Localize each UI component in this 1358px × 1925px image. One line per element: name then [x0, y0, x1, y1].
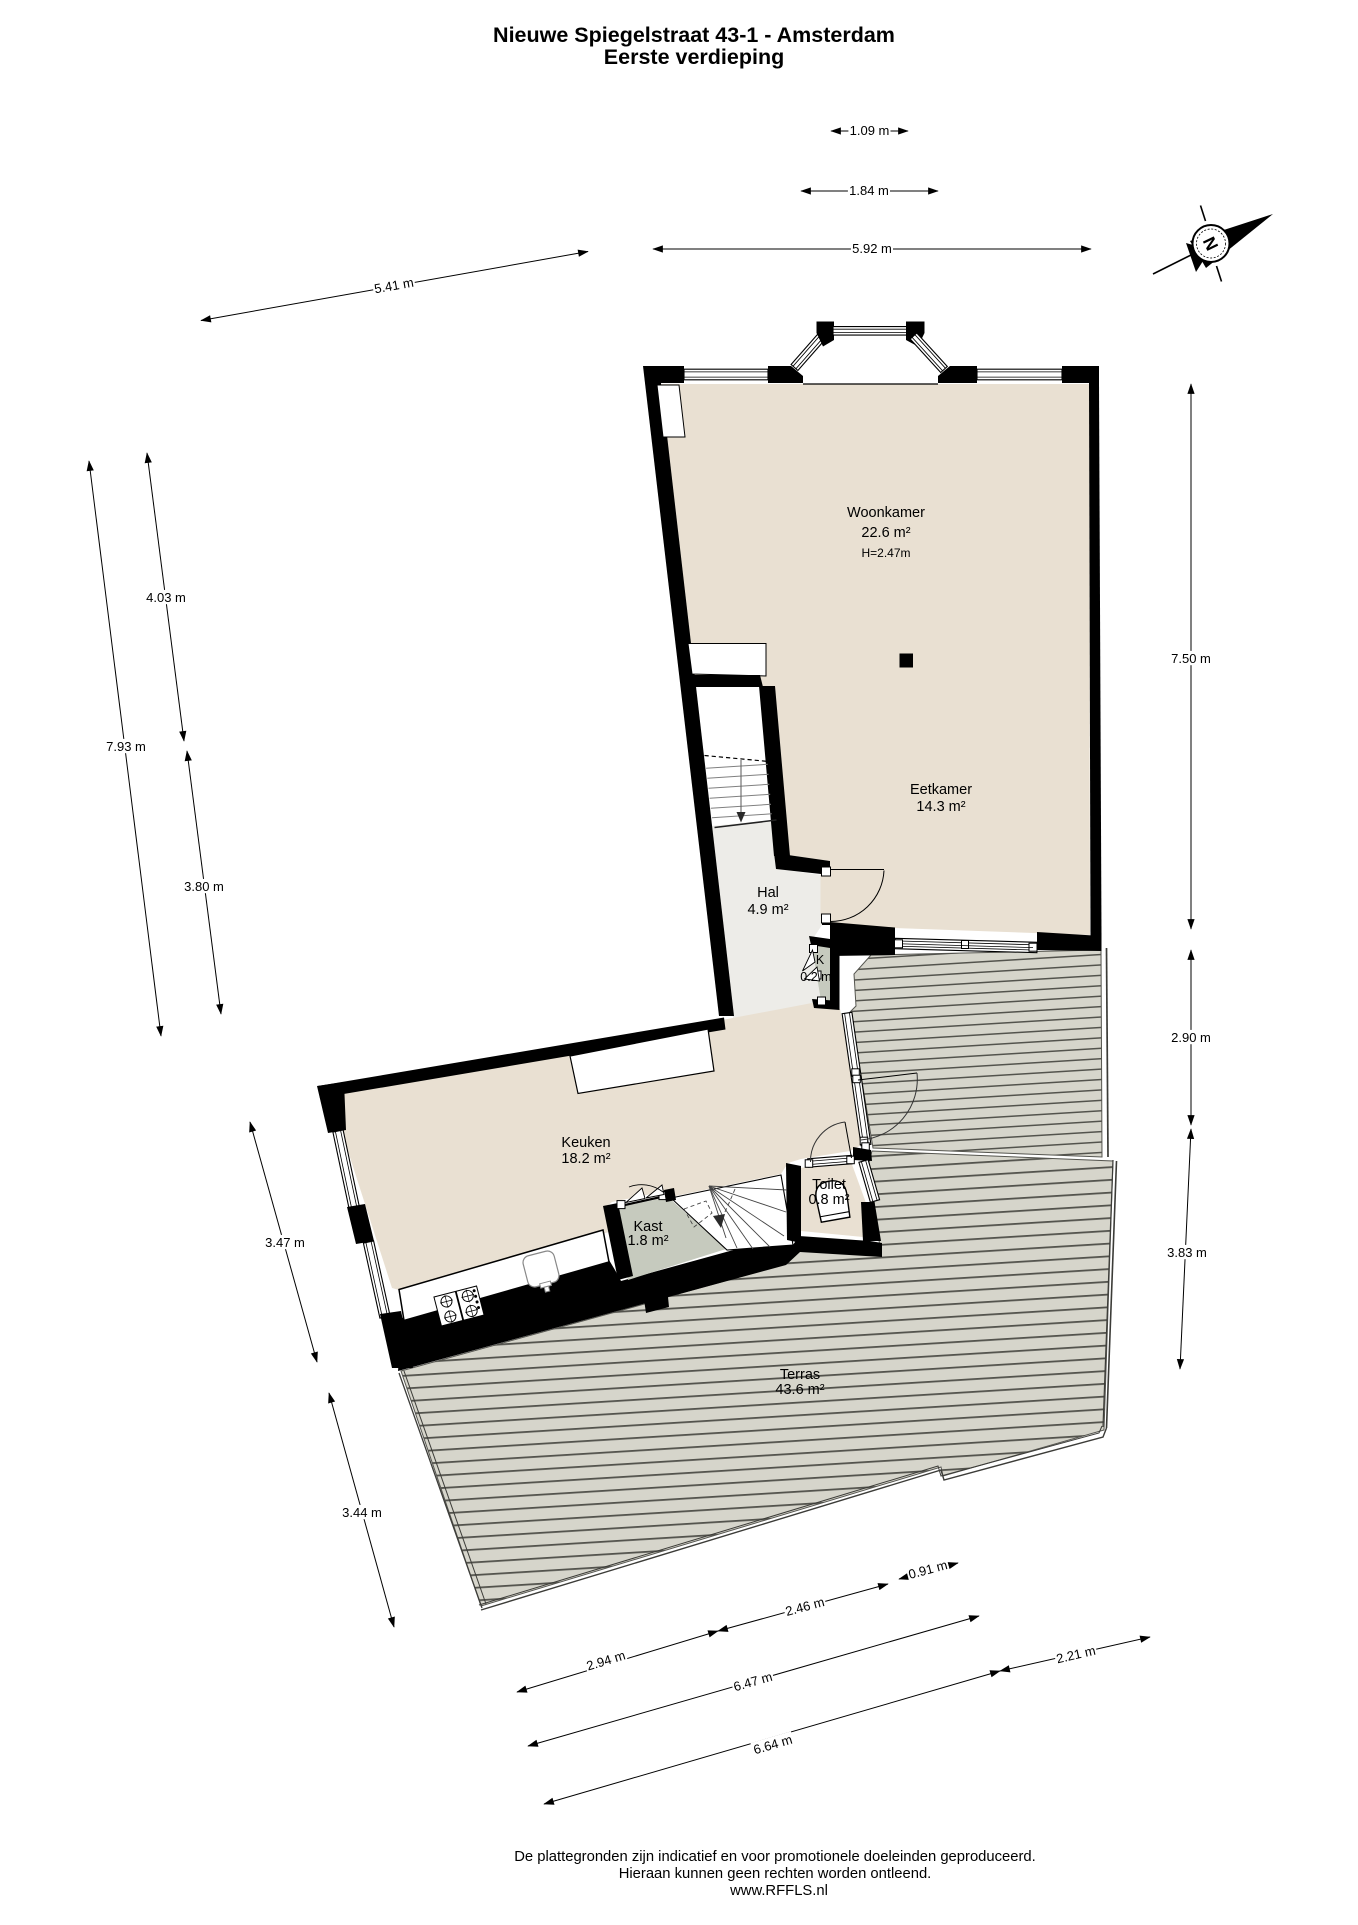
svg-text:2.90 m: 2.90 m	[1171, 1030, 1211, 1045]
svg-text:1.84 m: 1.84 m	[849, 183, 889, 198]
svg-text:Keuken: Keuken	[561, 1135, 610, 1151]
svg-text:3.47 m: 3.47 m	[265, 1235, 305, 1250]
svg-text:H=2.47m: H=2.47m	[861, 546, 910, 560]
svg-text:22.6 m²: 22.6 m²	[861, 525, 910, 541]
svg-text:5.92 m: 5.92 m	[852, 241, 892, 256]
svg-text:K: K	[816, 953, 825, 967]
svg-text:3.44 m: 3.44 m	[342, 1505, 382, 1520]
svg-text:www.RFFLS.nl: www.RFFLS.nl	[729, 1883, 828, 1899]
svg-text:Nieuwe Spiegelstraat 43-1 - Am: Nieuwe Spiegelstraat 43-1 - Amsterdam	[493, 23, 895, 47]
svg-text:14.3 m²: 14.3 m²	[916, 799, 965, 815]
svg-text:4.03 m: 4.03 m	[146, 590, 186, 605]
svg-text:Hal: Hal	[757, 885, 779, 901]
svg-text:18.2 m²: 18.2 m²	[561, 1151, 610, 1167]
svg-text:3.83 m: 3.83 m	[1167, 1245, 1207, 1260]
svg-text:Toilet: Toilet	[812, 1177, 846, 1193]
svg-text:7.93 m: 7.93 m	[106, 739, 146, 754]
svg-text:Woonkamer: Woonkamer	[847, 505, 925, 521]
svg-text:0.2 m²: 0.2 m²	[800, 970, 835, 984]
svg-text:Eetkamer: Eetkamer	[910, 782, 972, 798]
svg-text:0.8 m²: 0.8 m²	[808, 1192, 849, 1208]
svg-text:7.50 m: 7.50 m	[1171, 651, 1211, 666]
svg-text:Hieraan kunnen geen rechten wo: Hieraan kunnen geen rechten worden ontle…	[619, 1866, 932, 1882]
svg-text:1.09 m: 1.09 m	[850, 123, 890, 138]
svg-text:43.6 m²: 43.6 m²	[775, 1382, 824, 1398]
svg-text:Eerste verdieping: Eerste verdieping	[604, 45, 784, 69]
svg-text:1.8 m²: 1.8 m²	[627, 1233, 668, 1249]
svg-text:3.80 m: 3.80 m	[184, 879, 224, 894]
svg-text:De plattegronden zijn indicati: De plattegronden zijn indicatief en voor…	[514, 1849, 1036, 1865]
svg-text:Terras: Terras	[780, 1367, 820, 1383]
svg-text:4.9 m²: 4.9 m²	[747, 902, 788, 918]
